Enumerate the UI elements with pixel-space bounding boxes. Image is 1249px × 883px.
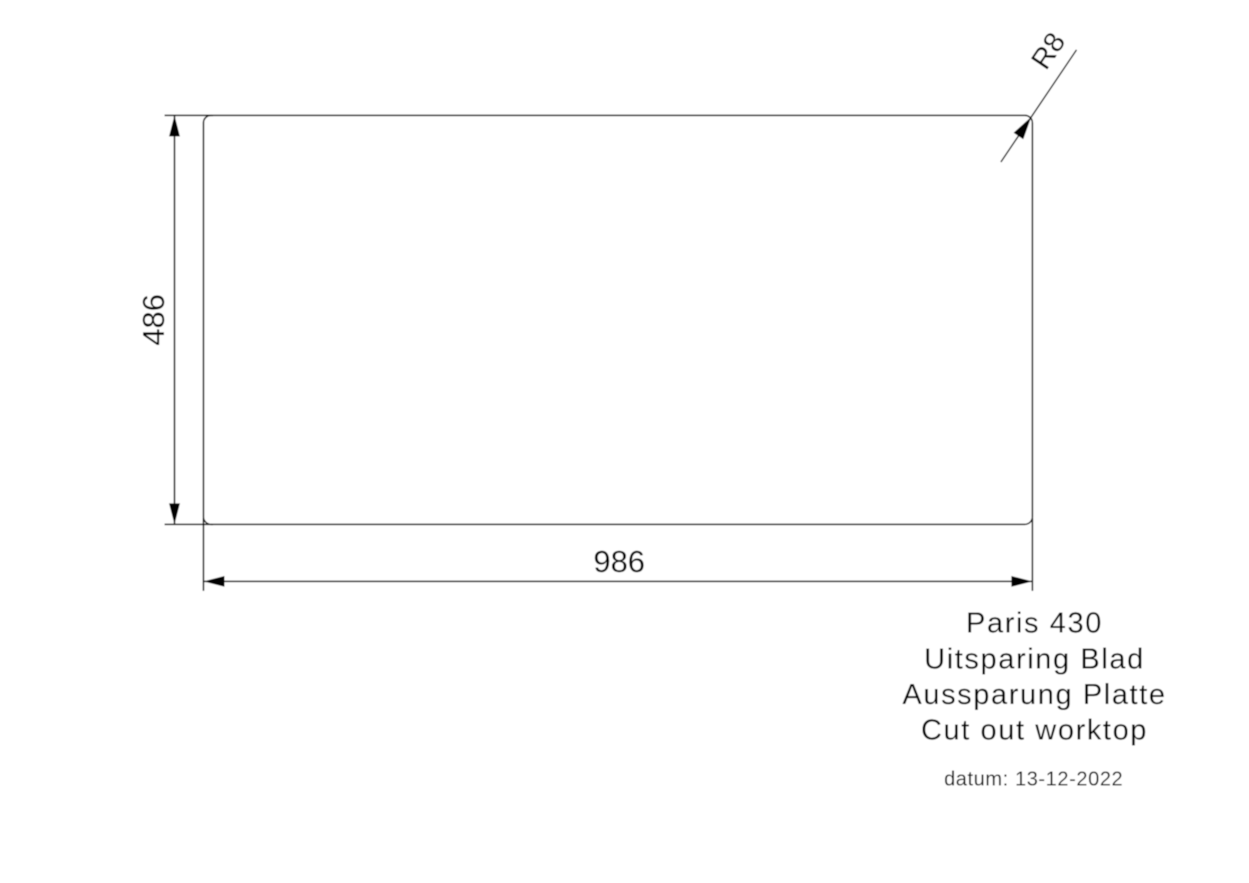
svg-text:Uitsparing Blad: Uitsparing Blad (924, 643, 1145, 675)
svg-text:Paris 430: Paris 430 (966, 608, 1103, 640)
svg-text:datum: 13-12-2022: datum: 13-12-2022 (944, 769, 1123, 791)
svg-text:986: 986 (593, 544, 645, 579)
svg-text:Aussparung Platte: Aussparung Platte (902, 679, 1166, 711)
svg-text:Cut out worktop: Cut out worktop (921, 715, 1148, 747)
svg-text:486: 486 (136, 294, 171, 346)
